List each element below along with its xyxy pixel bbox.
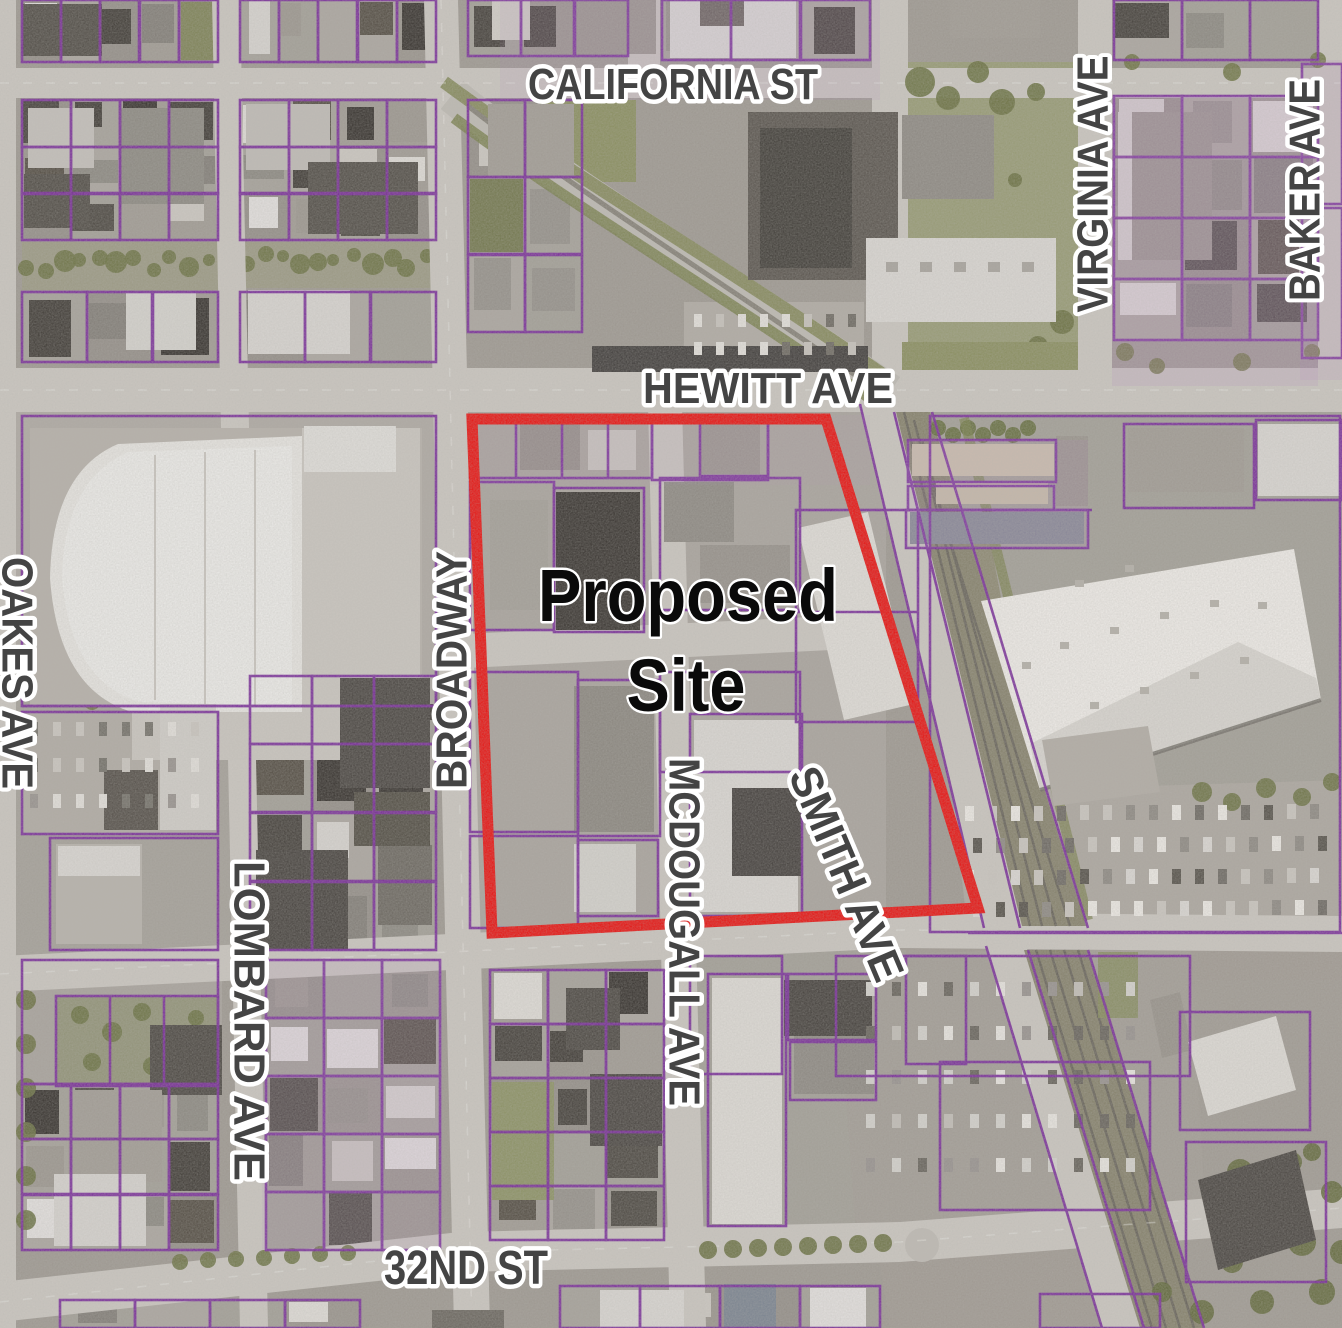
svg-text:VIRGINIA AVE: VIRGINIA AVE <box>1069 56 1118 313</box>
svg-text:LOMBARD AVE: LOMBARD AVE <box>225 861 274 1181</box>
svg-text:HEWITT AVE: HEWITT AVE <box>643 364 893 413</box>
svg-text:32ND ST: 32ND ST <box>384 1242 548 1295</box>
svg-text:MCDOUGALL AVE: MCDOUGALL AVE <box>660 758 709 1106</box>
svg-text:BROADWAY: BROADWAY <box>428 551 477 789</box>
svg-text:Site: Site <box>627 644 746 727</box>
svg-text:CALIFORNIA ST: CALIFORNIA ST <box>528 60 818 109</box>
svg-text:BAKER AVE: BAKER AVE <box>1281 79 1330 301</box>
svg-text:Proposed: Proposed <box>538 554 838 637</box>
svg-text:OAKES AVE: OAKES AVE <box>0 557 42 789</box>
